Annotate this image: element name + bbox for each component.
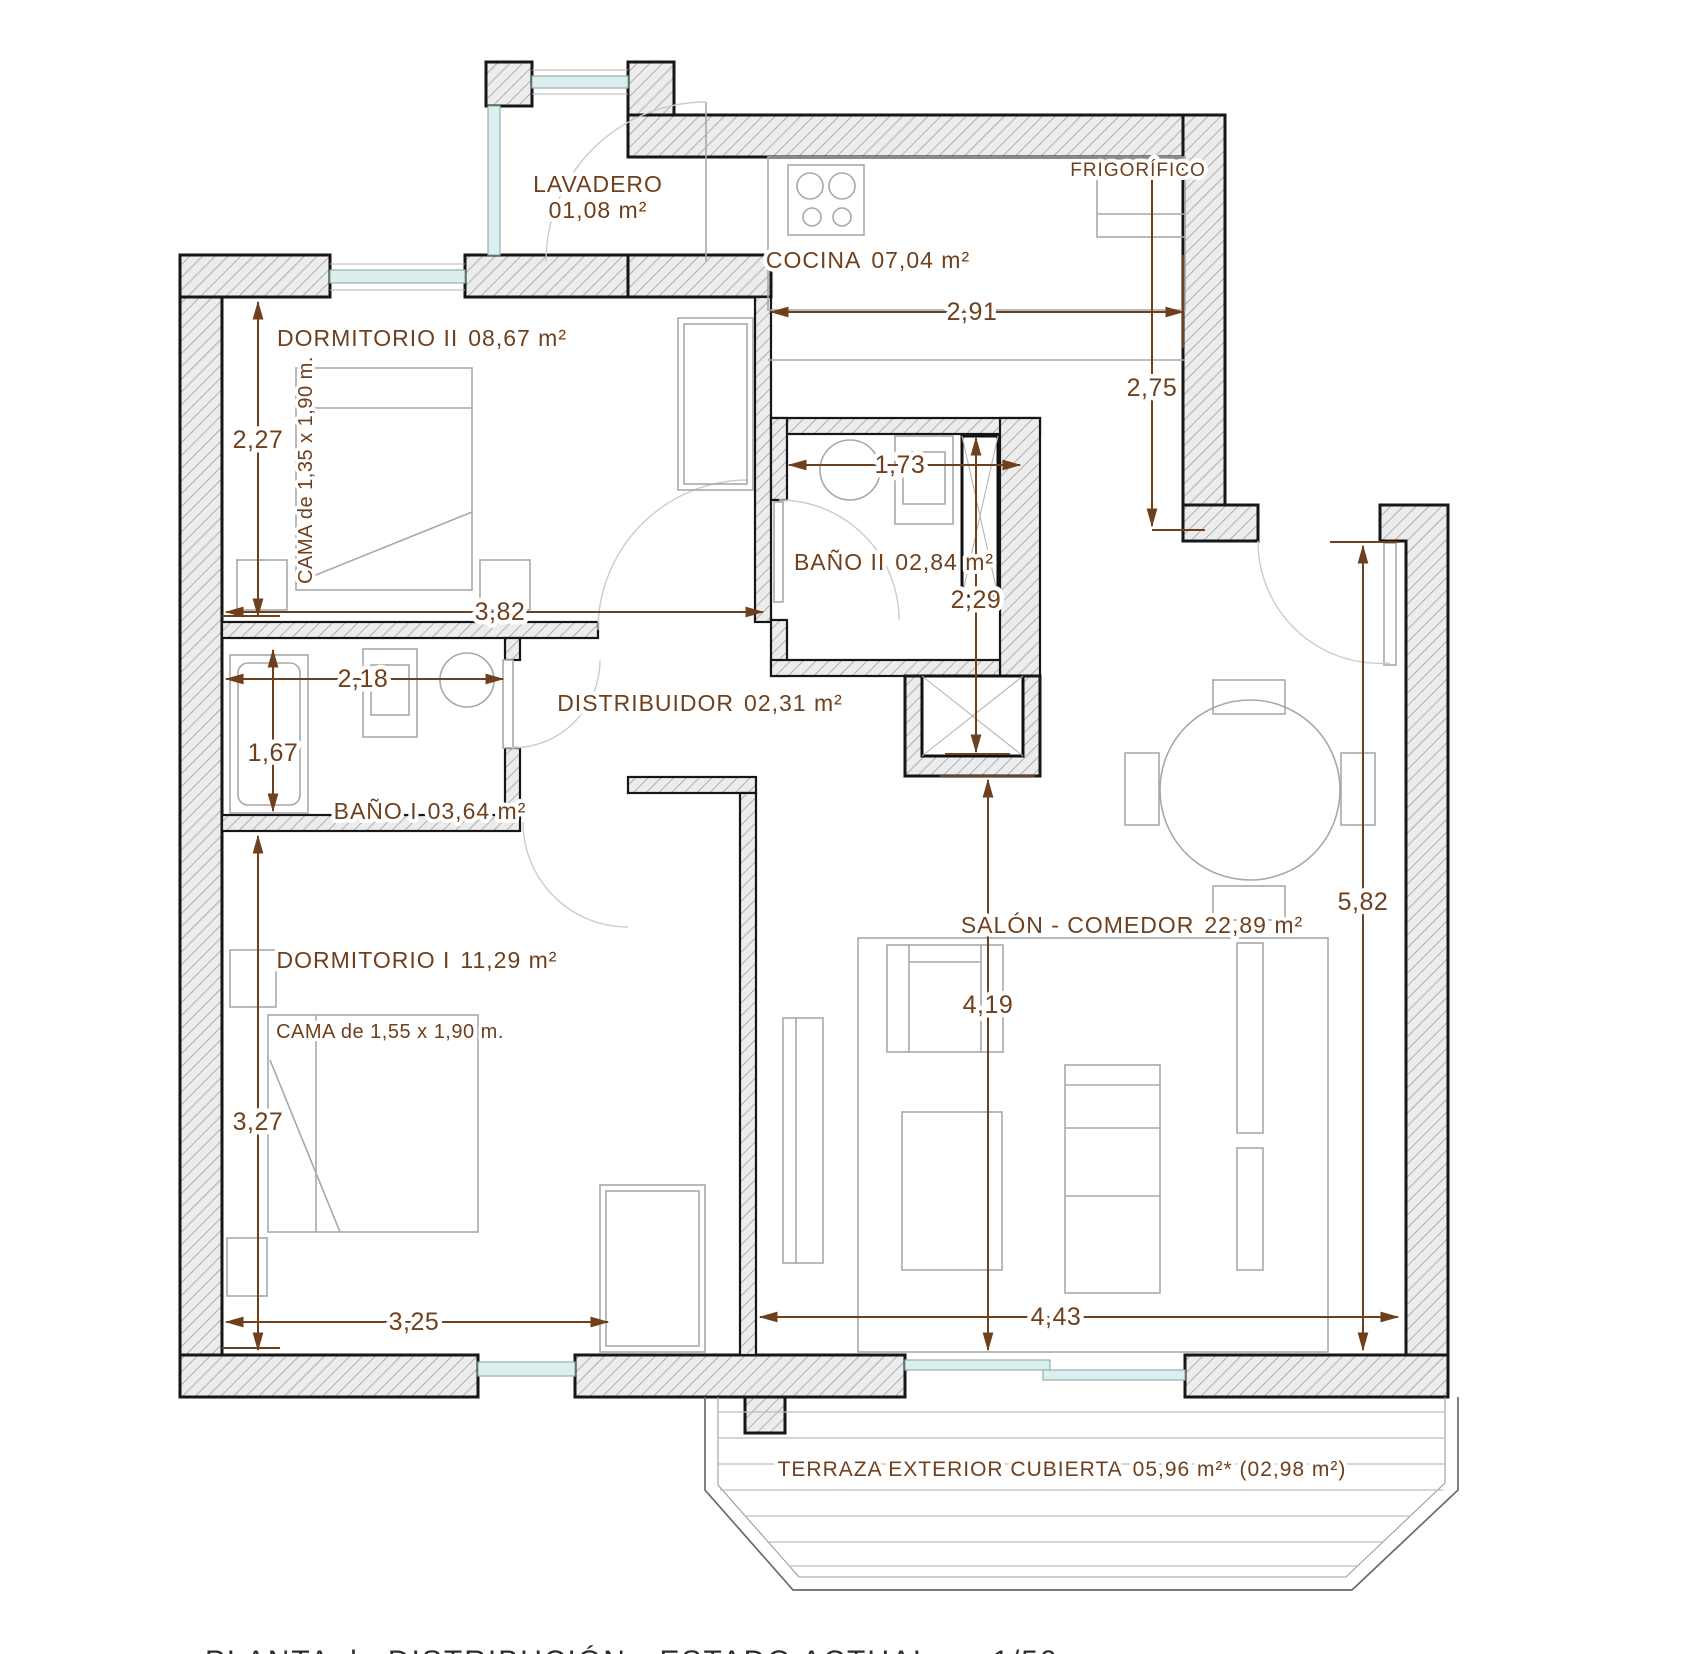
elevator-shaft: [905, 676, 1040, 776]
toilet-bano1: [363, 649, 417, 737]
bed-dorm2: [237, 368, 530, 610]
wall-bano2-west-upper: [771, 418, 787, 500]
rug: [858, 938, 1328, 1352]
window-dorm2-top: [330, 264, 465, 290]
dining-set: [1125, 680, 1375, 920]
dimension-label: 1,67: [248, 739, 299, 767]
chair: [1213, 680, 1285, 714]
wall-cocina-top: [628, 115, 1225, 157]
window-salon-bottom: [905, 1360, 1185, 1380]
nightstand: [237, 560, 287, 610]
wall-dorm2-right: [755, 297, 771, 622]
sofa: [1065, 1065, 1160, 1293]
floor-plan-page: 2,91 2,75 2,27 3,82 1,73 2,29 2,18 1,67 …: [0, 0, 1690, 1654]
dimension-label: 5,82: [1338, 888, 1389, 916]
door-leaf-bano2: [774, 502, 783, 602]
wall-entry-jamb: [1183, 505, 1258, 541]
side-table: [1237, 1148, 1263, 1270]
terrace-decking: [718, 1412, 1445, 1566]
chair: [1341, 753, 1375, 825]
door-leaf-entry: [1384, 543, 1396, 665]
plan-title: PLANTA de DISTRIBUCIÓN - ESTADO ACTUAL -…: [205, 1645, 1059, 1654]
door-arc-entry: [1258, 541, 1390, 663]
wall-left: [180, 255, 222, 1397]
dimension-label: 4,43: [1031, 1303, 1082, 1331]
room-label-lavadero: LAVADERO: [533, 171, 663, 197]
dimension-label: 3,27: [233, 1108, 284, 1136]
room-label-distribuidor: DISTRIBUIDOR02,31 m²: [557, 690, 843, 716]
dining-table: [1160, 700, 1340, 880]
nightstand: [227, 1238, 267, 1296]
room-label-salon: SALÓN - COMEDOR22,89 m²: [961, 912, 1303, 938]
wall-terrace-pier: [745, 1397, 785, 1433]
window-lavadero-left: [488, 106, 500, 255]
wall-bano1-east-upper: [505, 638, 520, 660]
wall-distribuidor-south: [628, 777, 756, 793]
room-label-dormitorio2: DORMITORIO II08,67 m²: [277, 325, 567, 351]
wardrobe-dorm1: [600, 1185, 705, 1352]
dimension-label: 2,75: [1127, 374, 1178, 402]
dimension-label: 3,25: [389, 1308, 440, 1336]
wall-dorm2-bottom: [222, 622, 598, 638]
wall-bano2-east: [1000, 418, 1040, 676]
window-dorm1-bottom: [478, 1362, 575, 1376]
wall-bottom-right: [1185, 1355, 1448, 1397]
label-cama-dorm1: CAMA de 1,55 x 1,90 m.: [276, 1021, 504, 1043]
wall-bano2-bottom: [771, 660, 1000, 676]
terrace: [705, 1397, 1458, 1590]
label-cama-dorm2: CAMA de 1,35 x 1,90 m.: [295, 356, 317, 584]
nightstand: [230, 950, 276, 1007]
wall-dorm1-salon: [740, 793, 756, 1355]
door-arc-dorm2: [598, 480, 748, 630]
wall-bottom-left: [180, 1355, 478, 1397]
sideboard: [783, 1018, 823, 1263]
wall-top-dorm2-left: [180, 255, 330, 297]
dimension-label: 3,82: [475, 598, 526, 626]
cooktop: [788, 165, 864, 235]
door-arc-dorm1: [523, 822, 628, 927]
dimension-label: 2,18: [338, 665, 389, 693]
room-label-bano1: BAÑO I03,64 m²: [334, 798, 527, 824]
wall-lavadero-bottom: [628, 255, 771, 297]
chair: [1125, 753, 1159, 825]
floor-plan-drawing: 2,91 2,75 2,27 3,82 1,73 2,29 2,18 1,67 …: [0, 0, 1690, 1654]
window-lavadero-top: [532, 70, 628, 94]
wall-lavadero-corner-left: [486, 62, 532, 106]
door-leaf-bano1: [503, 660, 513, 748]
wall-bottom-center: [575, 1355, 905, 1397]
console-table: [1237, 943, 1263, 1133]
room-label-dormitorio1: DORMITORIO I11,29 m²: [277, 947, 558, 973]
wardrobe-dorm2: [678, 318, 753, 490]
doors: [503, 102, 1396, 927]
dimension-label: 1,73: [875, 451, 926, 479]
room-area-lavadero: 01,08 m²: [549, 197, 648, 223]
room-label-bano2: BAÑO II02,84 m²: [794, 549, 994, 575]
dimension-label: 2,29: [951, 586, 1002, 614]
label-frigorifico: FRIGORÍFICO: [1070, 160, 1206, 181]
toilet-bano2: [895, 436, 953, 524]
dimension-label: 2,91: [947, 298, 998, 326]
room-label-cocina: COCINA07,04 m²: [766, 247, 970, 273]
room-label-terraza: TERRAZA EXTERIOR CUBIERTA05,96 m²* (02,9…: [778, 1458, 1347, 1481]
dimension-label: 2,27: [233, 426, 284, 454]
washbasin-bano2: [820, 440, 880, 500]
dimension-label: 4,19: [963, 991, 1014, 1019]
